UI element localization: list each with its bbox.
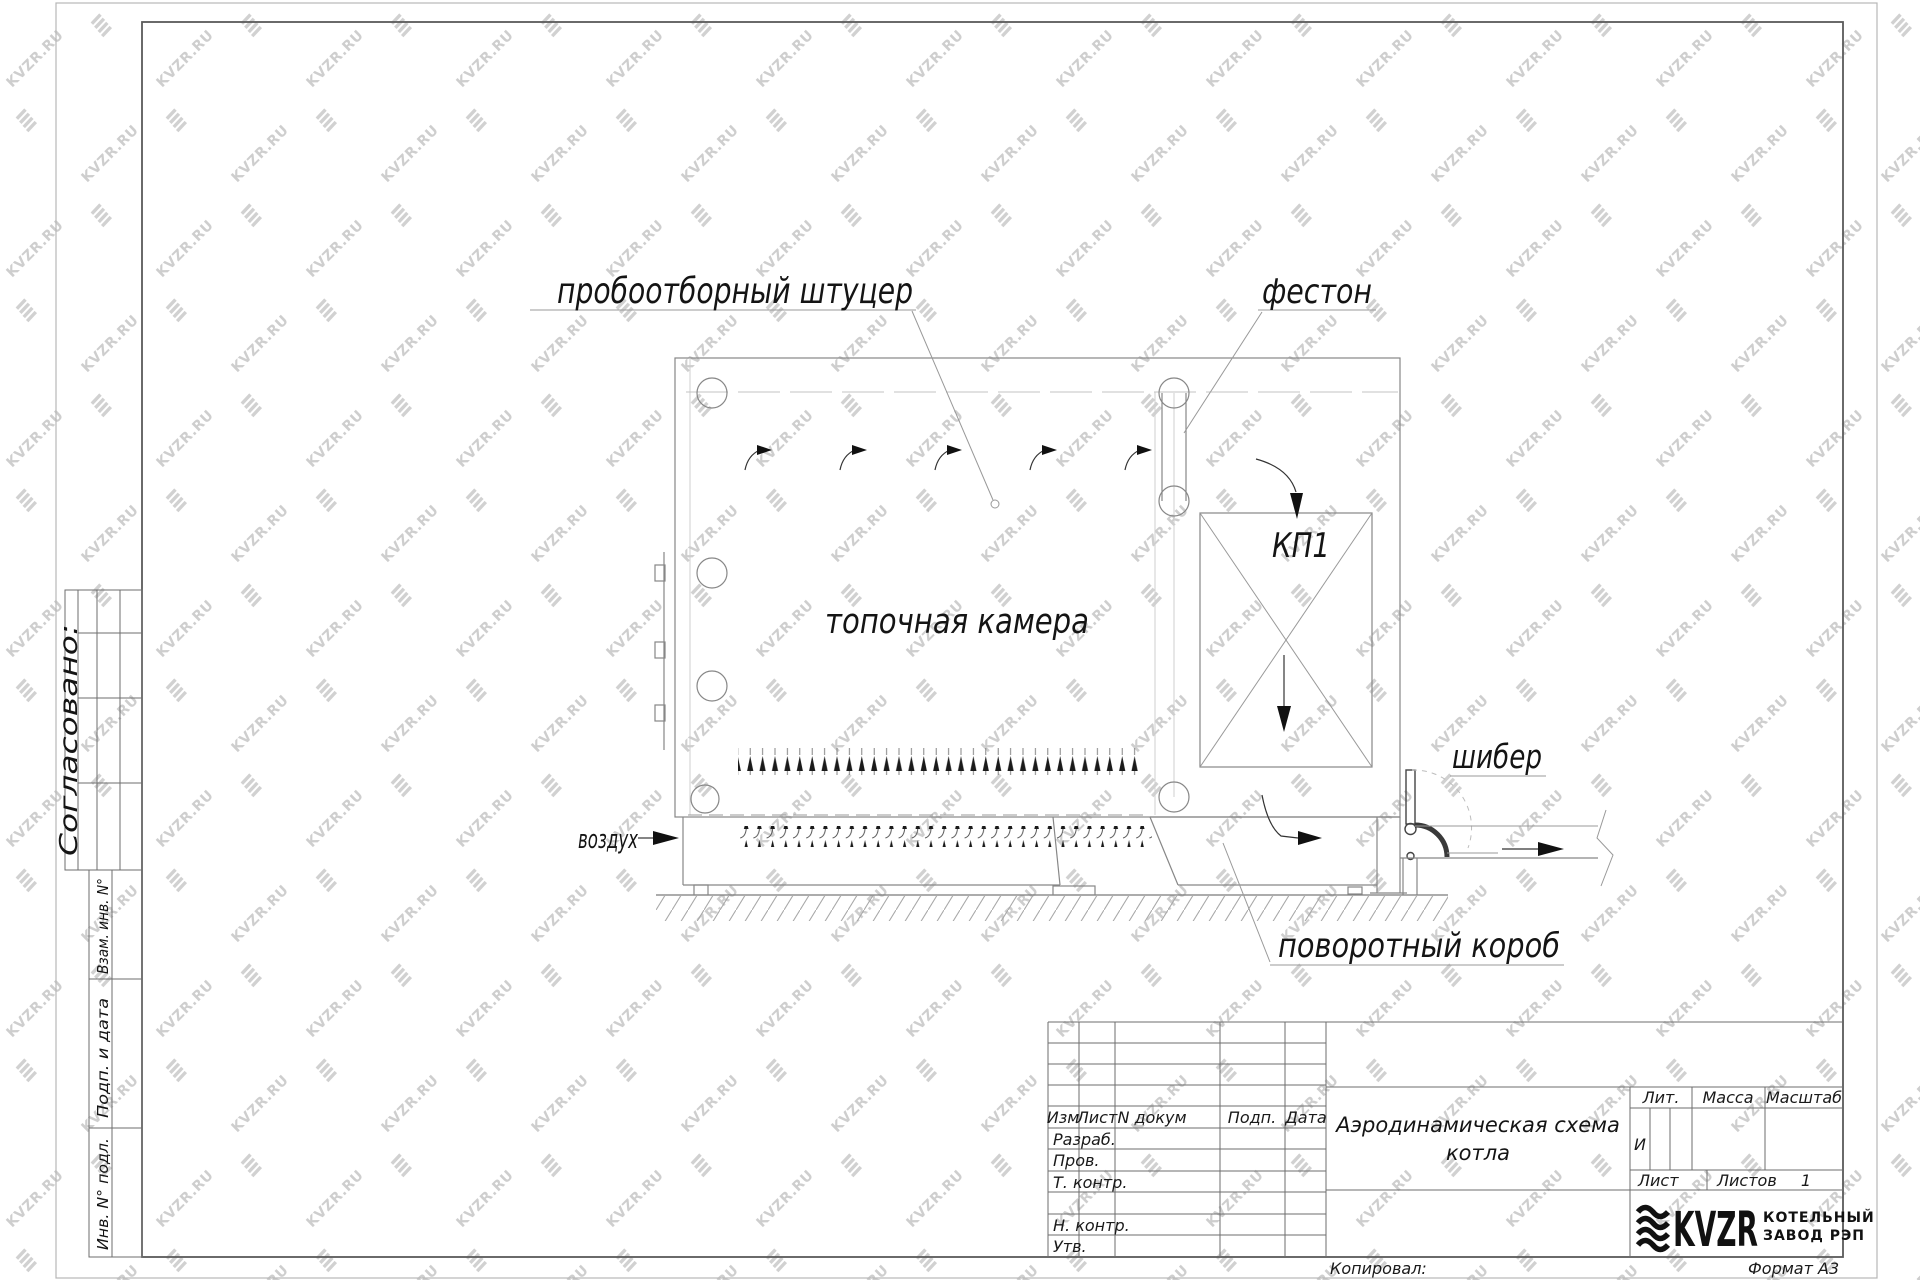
label-kp1: КП1 [1272, 526, 1330, 566]
row-t-kontr: Т. контр. [1053, 1173, 1127, 1192]
col-list: Лист [1076, 1108, 1118, 1127]
label-podp-data: Подп. и дата [94, 998, 112, 1118]
label-damper: шибер [1452, 737, 1542, 776]
label-inv-podl: Инв. N° подл. [94, 1138, 112, 1250]
doc-title-line2: котла [1446, 1141, 1510, 1165]
label-vzam-inv: Взам. инв. N° [94, 878, 112, 974]
row-utv: Утв. [1053, 1237, 1087, 1256]
masshtab-label: Масштаб [1766, 1088, 1842, 1107]
label-furnace-chamber: топочная камера [825, 602, 1089, 642]
format-note: Формат А3 [1748, 1259, 1839, 1278]
kopiroval-note: Копировал: [1330, 1259, 1427, 1278]
lit-value: И [1634, 1135, 1646, 1154]
label-soglasovano: Согласовано: [54, 624, 83, 856]
kvzr-logo-sub2: ЗАВОД РЭП [1763, 1228, 1865, 1244]
col-data: Дата [1284, 1108, 1326, 1127]
doc-title-line1: Аэродинамическая схема [1334, 1113, 1620, 1137]
col-izm: Изм [1047, 1108, 1080, 1127]
sheets-count: 1 [1801, 1171, 1811, 1190]
row-n-kontr: Н. контр. [1053, 1216, 1130, 1235]
kvzr-logo-text: KVZR [1673, 1202, 1758, 1258]
sheet-label: Лист [1637, 1171, 1679, 1190]
ground-hatch [656, 896, 1448, 921]
drawing-sheet: KVZR.RU KVZR.RU KVZR.RU KVZR.RU [0, 0, 1920, 1280]
kvzr-logo-sub1: КОТЕЛЬНЫЙ [1763, 1209, 1875, 1226]
massa-label: Масса [1702, 1088, 1753, 1107]
row-razrab: Разраб. [1053, 1130, 1116, 1149]
sheets-label: Листов [1716, 1171, 1777, 1190]
label-festoon: фестон [1262, 272, 1372, 312]
flame-row [738, 748, 1138, 775]
row-prov: Пров. [1053, 1151, 1100, 1170]
col-n-dokum: N докум [1117, 1108, 1186, 1127]
col-podp: Подп. [1228, 1108, 1276, 1127]
label-turning-duct: поворотный короб [1278, 926, 1560, 966]
label-air: воздух [578, 825, 638, 855]
boiler-aerodynamic-scheme: KVZR.RU KVZR.RU KVZR.RU KVZR.RU [0, 0, 1920, 1280]
label-sampling-fitting: пробоотборный штуцер [557, 271, 913, 312]
lit-label: Лит. [1642, 1088, 1680, 1107]
grate-combustion-row [740, 826, 1152, 847]
